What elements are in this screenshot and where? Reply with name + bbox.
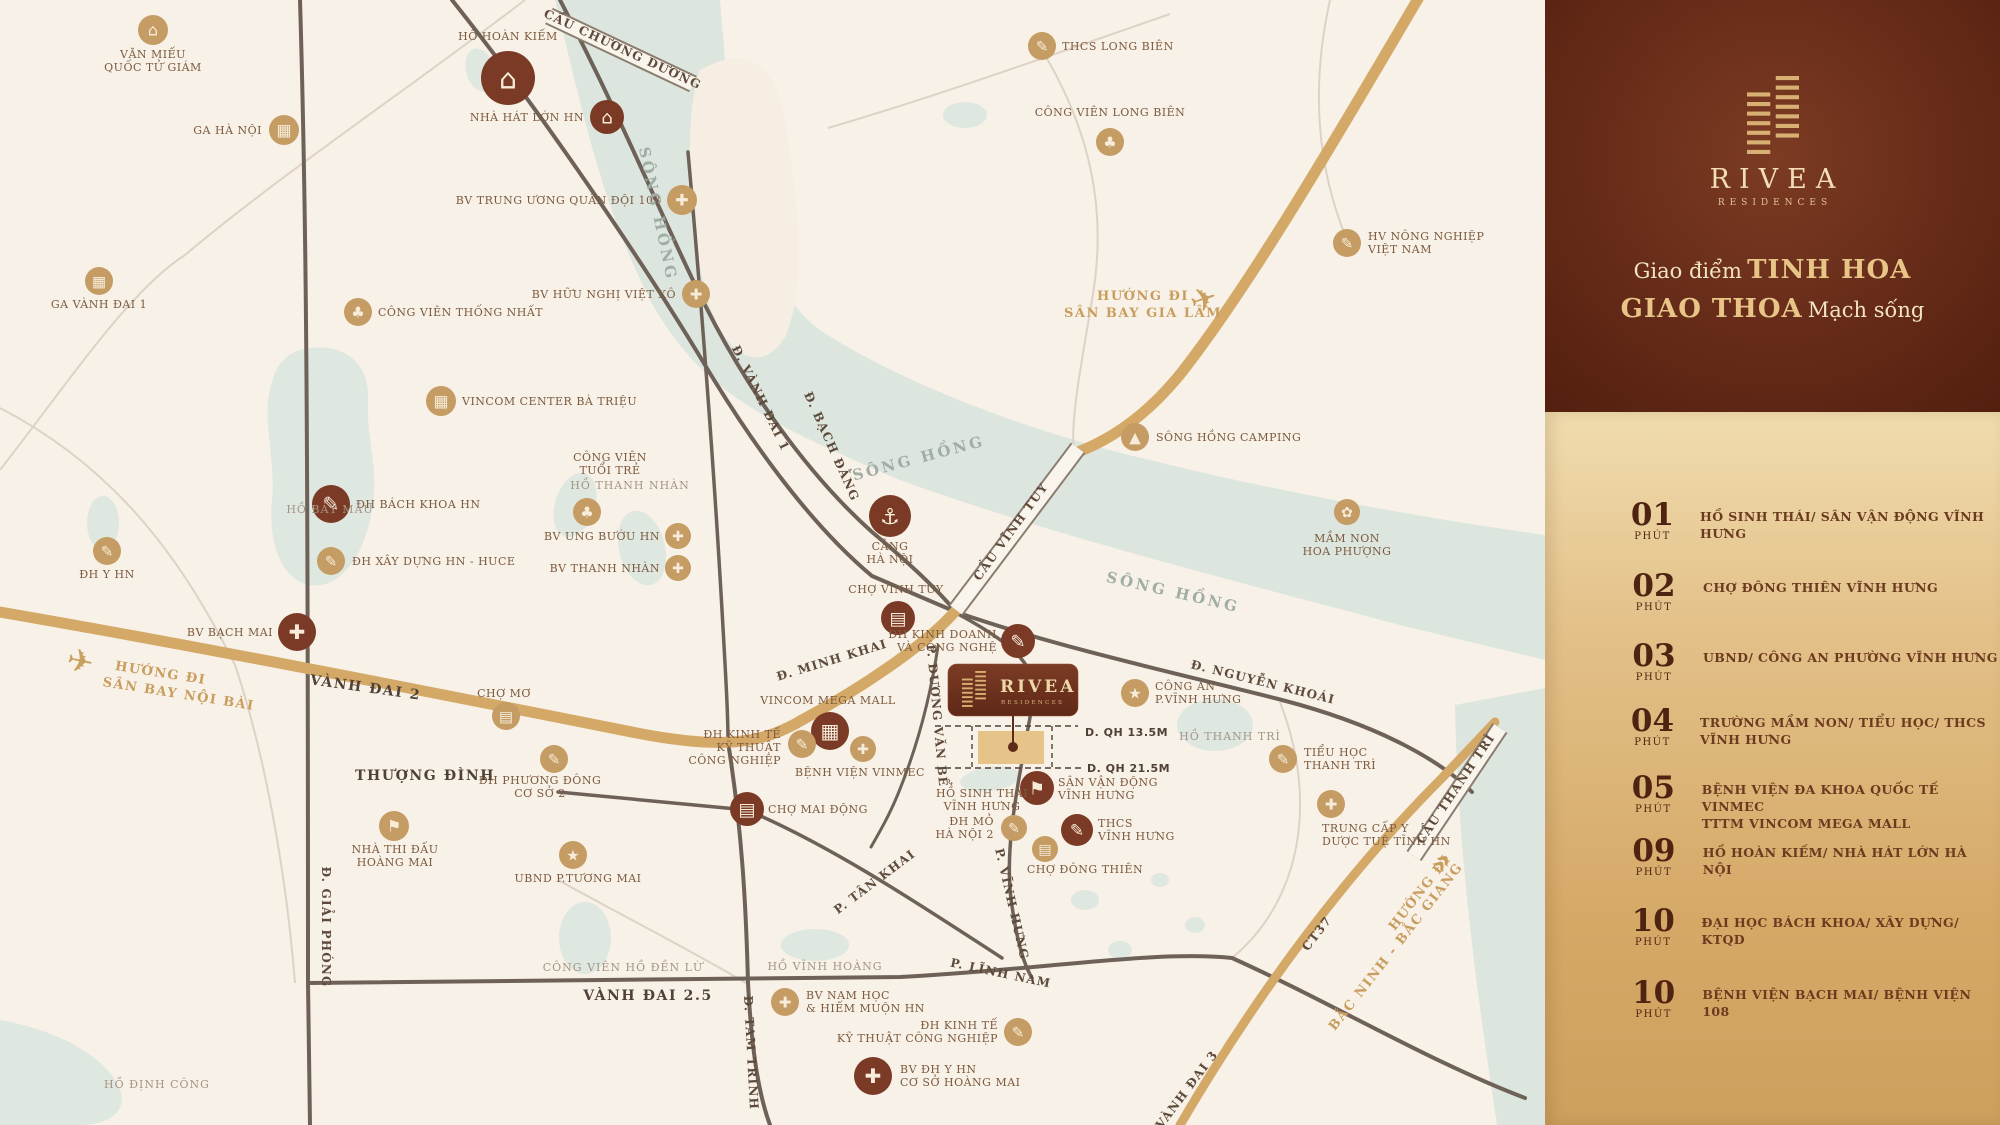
map-label: THƯỢNG ĐÌNH (355, 766, 495, 784)
poi-label: NHÀ THI ĐẤU (351, 841, 438, 856)
map-label: VĨNH HƯNG (943, 799, 1021, 813)
flower-icon-glyph: ✿ (1341, 505, 1353, 521)
poi-label: CƠ SỞ HOÀNG MAI (900, 1074, 1021, 1089)
destination-label: BỆNH VIỆN BẠCH MAI/ BỆNH VIỆN 108 (1702, 978, 2000, 1020)
poi-label: VĨNH HƯNG (1097, 829, 1175, 843)
destination-label: HỒ HOÀN KIẾM/ NHÀ HÁT LỚN HÀ NỘI (1703, 836, 2000, 878)
travel-time-item: 01PHÚT HỒ SINH THÁI/ SÂN VẬN ĐỘNG VĨNH H… (1623, 500, 2000, 542)
travel-time-item: 03PHÚT UBND/ CÔNG AN PHƯỜNG VĨNH HƯNG (1623, 641, 1998, 683)
hospital-icon-glyph: ✚ (675, 191, 688, 210)
travel-time-item: 02PHÚT CHỢ ĐÔNG THIÊN VĨNH HƯNG (1623, 571, 1938, 613)
poi-label: P.VĨNH HƯNG (1155, 692, 1241, 706)
hospital-icon-glyph: ✚ (672, 529, 684, 545)
poi-label: TUỔI TRẺ (579, 461, 640, 477)
market-icon-glyph: ▤ (1038, 842, 1051, 858)
destination-label: ĐẠI HỌC BÁCH KHOA/ XÂY DỰNG/ KTQD (1702, 906, 2000, 948)
brand-name: RIVEA (1545, 164, 2000, 195)
poi-label: CHỢ VĨNH TUY (848, 582, 944, 596)
minutes-badge: 10PHÚT (1623, 978, 1684, 1020)
poi-label: GA VÀNH ĐAI 1 (51, 297, 147, 311)
map-label: D. QH 13.5M (1085, 726, 1168, 739)
map-label: VÀNH ĐAI 2.5 (582, 986, 713, 1004)
poi-label: BV THANH NHÀN (550, 561, 660, 575)
theatre-icon-glyph: ⌂ (601, 107, 612, 128)
poi-label: & HIẾM MUỘN HN (806, 1000, 925, 1015)
poi-label: VIỆT NAM (1367, 242, 1432, 256)
rivea-location-map-poster: RIVEA RESIDENCES ⌂VĂN MIẾUQUỐC TỬ GIÁM▦G… (0, 0, 2000, 1125)
park-icon-glyph: ♣ (580, 503, 593, 521)
park-icon-glyph: ♣ (351, 303, 364, 321)
poi-label: HV NÔNG NGHIỆP (1368, 229, 1484, 243)
map-area: RIVEA RESIDENCES ⌂VĂN MIẾUQUỐC TỬ GIÁM▦G… (0, 0, 1545, 1125)
poi-label: HỒ HOÀN KIẾM (458, 28, 558, 43)
travel-time-item: 10PHÚT ĐẠI HỌC BÁCH KHOA/ XÂY DỰNG/ KTQD (1623, 906, 2000, 948)
poi-label: ĐH KINH TẾ (703, 726, 781, 741)
monument-icon-glyph: ⌂ (148, 21, 158, 40)
school-icon-glyph: ✎ (796, 735, 809, 753)
poi-dh-mo-ha-noi-2: ✎ĐH MỎHÀ NỘI 2 (935, 813, 1027, 841)
badge-project-name: RIVEA (1000, 677, 1076, 697)
travel-time-item: 05PHÚT BỆNH VIỆN ĐA KHOA QUỐC TẾ VINMEC … (1623, 773, 2000, 832)
poi-label: VINCOM MEGA MALL (759, 694, 896, 707)
poi-label: CÔNG NGHIỆP (688, 753, 781, 767)
minutes-badge: 02PHÚT (1623, 571, 1685, 613)
poi-label: CÔNG VIÊN (573, 450, 647, 464)
poi-label: NHÀ HÁT LỚN HN (470, 110, 584, 124)
minutes-badge: 03PHÚT (1623, 641, 1685, 683)
poi-label: BV TRUNG ƯƠNG QUÂN ĐỘI 108 (456, 193, 661, 207)
map-label: CÔNG VIÊN HỒ ĐỀN LỪ (543, 959, 704, 974)
hospital-icon-glyph: ✚ (865, 1064, 882, 1088)
tagline: Giao điểm TINH HOA GIAO THOA Mạch sống (1545, 252, 2000, 330)
poi-label: ĐH Y HN (79, 568, 134, 581)
poi-label: CÔNG VIÊN LONG BIÊN (1035, 105, 1186, 119)
minutes-badge: 01PHÚT (1623, 500, 1682, 542)
destination-label: UBND/ CÔNG AN PHƯỜNG VĨNH HƯNG (1703, 641, 1998, 666)
destination-label: TRƯỜNG MẦM NON/ TIỂU HỌC/ THCS VĨNH HƯNG (1700, 706, 2000, 748)
badge-project-subtitle: RESIDENCES (1001, 700, 1064, 706)
poi-label: ĐH PHƯƠNG ĐÔNG (479, 773, 601, 787)
poi-label: HOÀNG MAI (357, 855, 434, 869)
map-label: HỒ ĐỊNH CÔNG (104, 1076, 210, 1091)
market-icon-glyph: ▤ (889, 608, 906, 629)
minutes-badge: 10PHÚT (1623, 906, 1684, 948)
map-label: HỒ THANH NHÀN (570, 477, 689, 492)
poi-label: MẦM NON (1314, 530, 1380, 545)
rivea-badge: RIVEA RESIDENCES (948, 664, 1078, 716)
hospital-icon-glyph: ✚ (289, 620, 306, 644)
tagline-line1-emphasis: TINH HOA (1747, 255, 1911, 285)
school-icon-glyph: ✎ (1277, 750, 1290, 768)
brand-subtitle: RESIDENCES (1545, 198, 2000, 208)
park-icon-glyph: ♣ (1103, 133, 1116, 151)
hospital-icon-glyph: ✚ (779, 993, 792, 1011)
poi-label: BV ĐH Y HN (900, 1063, 976, 1076)
gov-icon-glyph: ★ (1128, 684, 1141, 702)
poi-label: CÔNG AN (1155, 679, 1215, 693)
poi-label: SÂN VẬN ĐỘNG (1058, 775, 1158, 789)
hospital-icon-glyph: ✚ (690, 285, 703, 303)
stadium-icon-glyph: ⚑ (1029, 778, 1045, 799)
info-panel: RIVEA RESIDENCES Giao điểm TINH HOA GIAO… (1545, 0, 2000, 1125)
poi-label: ĐH XÂY DỰNG HN - HUCE (352, 554, 515, 568)
map-label: HỒ THANH TRÌ (1179, 728, 1281, 743)
hospital-icon-glyph: ✚ (857, 742, 869, 758)
minutes-badge: 04PHÚT (1623, 706, 1682, 748)
monument-icon-glyph: ⌂ (499, 62, 517, 95)
poi-label: TRUNG CẤP Y (1322, 820, 1409, 835)
tagline-line2-emphasis: GIAO THOA (1621, 294, 1803, 324)
poi-label: BV HỮU NGHỊ VIỆT XÔ (532, 287, 676, 301)
travel-time-item: 10PHÚT BỆNH VIỆN BẠCH MAI/ BỆNH VIỆN 108 (1623, 978, 2000, 1020)
school-icon-glyph: ✎ (1008, 821, 1020, 837)
school-icon-glyph: ✎ (1341, 234, 1354, 252)
destination-label: HỒ SINH THÁI/ SÂN VẬN ĐỘNG VĨNH HƯNG (1700, 500, 2000, 542)
poi-label: THANH TRÌ (1304, 758, 1376, 772)
travel-time-item: 04PHÚT TRƯỜNG MẦM NON/ TIỂU HỌC/ THCS VĨ… (1623, 706, 2000, 748)
poi-label: CHỢ ĐÔNG THIÊN (1027, 862, 1143, 876)
station-icon-glyph: ▦ (92, 272, 106, 290)
rivea-logo-icon (1747, 76, 1799, 154)
poi-label: CHỢ MƠ (477, 687, 531, 700)
gov-icon-glyph: ★ (566, 846, 579, 864)
poi-label: VĨNH HƯNG (1057, 788, 1135, 802)
school-icon-glyph: ✎ (101, 542, 114, 560)
tagline-line1-regular: Giao điểm (1634, 259, 1742, 283)
map-label: HỒ VĨNH HOÀNG (767, 958, 882, 973)
poi-label: VĂN MIẾU (119, 46, 186, 61)
hospital-icon-glyph: ✚ (1325, 795, 1338, 813)
poi-dh-kinh-doanh-va-cong-nghe: ✎ĐH KINH DOANHVÀ CÔNG NGHỆ (888, 624, 1035, 658)
school-icon-glyph: ✎ (548, 750, 561, 768)
mall-icon-glyph: ▦ (821, 719, 840, 743)
poi-label: BV UNG BƯỚU HN (544, 529, 660, 543)
poi-label: CÔNG VIÊN THỐNG NHẤT (378, 304, 543, 319)
destination-label: BỆNH VIỆN ĐA KHOA QUỐC TẾ VINMEC TTTM VI… (1702, 773, 2000, 832)
market-icon-glyph: ▤ (738, 799, 755, 820)
poi-label: ĐH KINH DOANH (888, 628, 997, 641)
school-icon-glyph: ✎ (1012, 1023, 1025, 1041)
mall-icon-glyph: ▦ (433, 392, 448, 411)
poi-label: ĐH BÁCH KHOA HN (356, 497, 481, 511)
market-icon-glyph: ▤ (499, 707, 513, 725)
school-icon-glyph: ✎ (325, 552, 338, 570)
camp-icon-glyph: ▲ (1129, 428, 1141, 446)
school-icon-glyph: ✎ (1036, 37, 1049, 55)
destination-label: CHỢ ĐÔNG THIÊN VĨNH HƯNG (1703, 571, 1938, 596)
travel-time-list: 01PHÚT HỒ SINH THÁI/ SÂN VẬN ĐỘNG VĨNH H… (1545, 412, 2000, 1125)
school-icon-glyph: ✎ (1010, 631, 1025, 652)
poi-label: QUỐC TỬ GIÁM (104, 59, 202, 74)
map-canvas: RIVEA RESIDENCES ⌂VĂN MIẾUQUỐC TỬ GIÁM▦G… (0, 0, 1545, 1125)
school-icon-glyph: ✎ (1070, 821, 1084, 841)
map-label: HƯỚNG ĐI (1097, 287, 1189, 304)
poi-label: VÀ CÔNG NGHỆ (896, 640, 997, 654)
stadium-icon-glyph: ⚑ (387, 817, 401, 836)
minutes-badge: 09PHÚT (1623, 836, 1685, 878)
poi-label: VINCOM CENTER BÀ TRIỆU (461, 394, 637, 408)
map-label: HỒ SINH THÁI (936, 785, 1028, 800)
station-icon-glyph: ▦ (276, 121, 291, 140)
poi-tieu-hoc-thanh-tri: ✎TIỂU HỌCTHANH TRÌ (1269, 744, 1376, 773)
tagline-line2-regular: Mạch sống (1808, 298, 1925, 322)
poi-label: ĐH KINH TẾ (920, 1017, 998, 1032)
port-icon-glyph: ⚓ (880, 505, 900, 530)
map-label: Đ. GIẢI PHÓNG (319, 866, 336, 987)
poi-label: BỆNH VIỆN VINMEC (795, 765, 925, 779)
poi-label: UBND P.TƯƠNG MAI (514, 872, 641, 885)
poi-label: THCS (1098, 817, 1133, 830)
poi-label: THCS LONG BIÊN (1062, 39, 1174, 53)
poi-label: CƠ SỞ 2 (514, 785, 565, 800)
poi-label: ĐH MỎ (949, 813, 994, 828)
minutes-badge: 05PHÚT (1623, 773, 1684, 815)
travel-time-item: 09PHÚT HỒ HOÀN KIẾM/ NHÀ HÁT LỚN HÀ NỘI (1623, 836, 2000, 878)
map-label: HỒ BẢY MẪU (286, 501, 373, 516)
poi-label: SÔNG HỒNG CAMPING (1156, 429, 1301, 444)
poi-label: TIỂU HỌC (1304, 744, 1368, 759)
brand-panel: RIVEA RESIDENCES Giao điểm TINH HOA GIAO… (1545, 0, 2000, 412)
poi-label: CHỢ MAI ĐỘNG (768, 802, 868, 816)
poi-label: BV BẠCH MAI (187, 626, 273, 639)
poi-label: CẢNG (872, 538, 909, 553)
poi-label: HÀ NỘI (866, 552, 913, 566)
poi-label: HÀ NỘI 2 (935, 827, 994, 841)
hospital-icon-glyph: ✚ (672, 561, 684, 577)
map-label: D. QH 21.5M (1087, 762, 1170, 775)
poi-label: HOA PHƯỢNG (1303, 545, 1392, 558)
poi-label: KỸ THUẬT CÔNG NGHIỆP (837, 1031, 998, 1045)
poi-label: GA HÀ NỘI (193, 123, 262, 137)
poi-label: KỸ THUẬT (717, 740, 782, 754)
poi-label: BV NAM HỌC (806, 989, 890, 1002)
site-pin-dot (1008, 742, 1018, 752)
